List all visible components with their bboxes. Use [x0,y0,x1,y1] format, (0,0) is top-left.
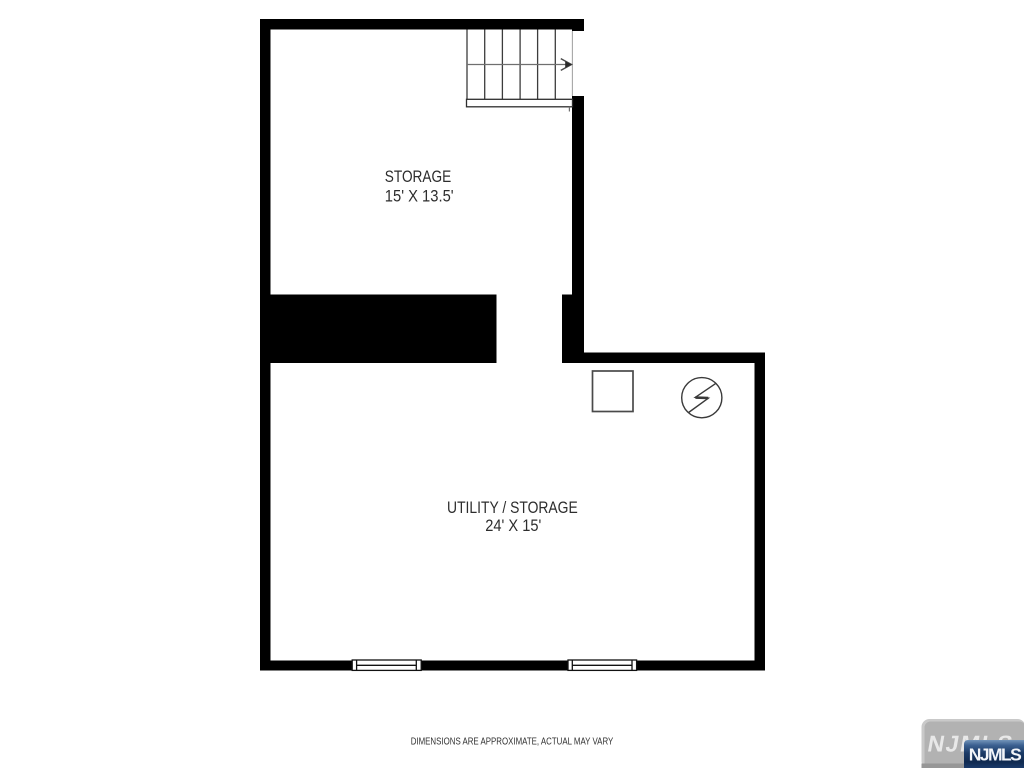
svg-text:STORAGE: STORAGE [385,167,452,186]
svg-text:UTILITY / STORAGE: UTILITY / STORAGE [447,498,578,517]
svg-text:DIMENSIONS ARE APPROXIMATE, AC: DIMENSIONS ARE APPROXIMATE, ACTUAL MAY V… [411,737,614,748]
svg-text:24' X 15': 24' X 15' [485,516,541,535]
svg-text:15' X 13.5': 15' X 13.5' [385,187,454,206]
svg-text:NJMLS: NJMLS [969,744,1022,764]
